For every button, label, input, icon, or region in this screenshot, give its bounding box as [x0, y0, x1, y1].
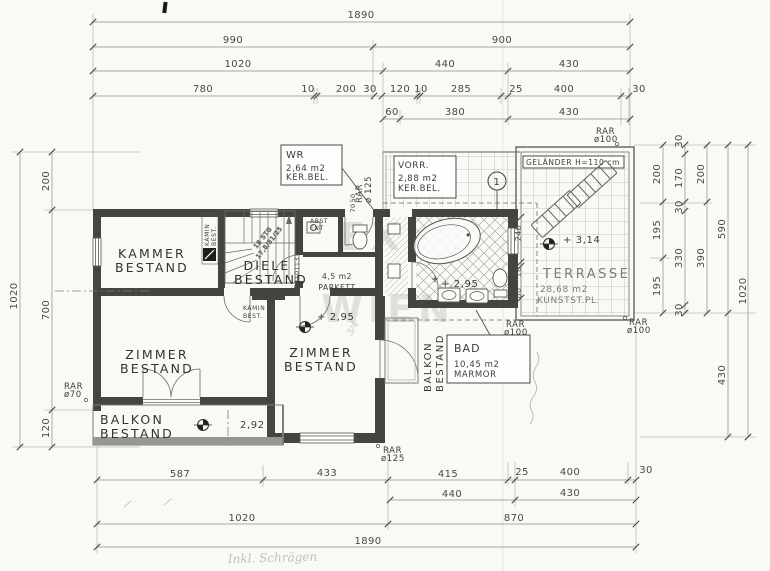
railing-note: GELÄNDER H=110 cm — [526, 158, 620, 167]
room-name: VORR. — [398, 161, 429, 171]
room-name: DIELE — [243, 258, 290, 273]
dim-label: 590 — [717, 219, 728, 239]
rar-text: ø100 — [504, 328, 528, 338]
balcony-southwest: BALKON BESTAND 2,92 — [93, 405, 283, 445]
dim-label: 380 — [445, 107, 465, 118]
room-floor: KUNSTST.PL. — [537, 296, 600, 306]
room-name: BAD — [454, 342, 481, 355]
bath-toilet — [493, 269, 507, 297]
dim-label: 113 — [293, 257, 301, 271]
bath-sink — [438, 288, 460, 302]
dim-label: 440 — [435, 59, 455, 70]
room-area: 2,88 m2 — [398, 174, 438, 184]
room-name: ZIMMER — [289, 345, 353, 360]
level-value: + 2,95 — [317, 312, 354, 323]
floor-plan-scan: EX WIEN 1890 990 900 1020 440 43 — [0, 0, 770, 571]
bath-sink — [466, 289, 488, 303]
level-value: 2,92 — [240, 420, 265, 431]
dim-label: 200 — [336, 84, 356, 95]
rar-text: ø 125 — [364, 176, 374, 203]
dim-label: 400 — [554, 84, 574, 95]
dim-label: 1020 — [224, 59, 251, 70]
room-abbrev: ABST — [310, 218, 328, 225]
room-status: BESTAND — [120, 361, 194, 376]
stairs-note: 18 STG 17,8/31/25 — [249, 220, 285, 260]
dim-label: 430 — [559, 59, 579, 70]
rar-text: ø100 — [594, 135, 618, 145]
level-value: + 3,14 — [563, 235, 600, 246]
room-status: BESTAND — [115, 260, 189, 275]
dim-label: 195 — [652, 220, 663, 240]
dim-label: 30 — [363, 84, 377, 95]
dim-label: 433 — [317, 468, 337, 479]
dim-label: 60 — [385, 107, 399, 118]
dim-label: 780 — [193, 84, 213, 95]
room-name: TERRASSE — [542, 267, 630, 282]
dim-label: 430 — [717, 365, 728, 385]
door-balcony-east — [380, 340, 418, 378]
dim-label: 200 — [652, 164, 663, 184]
dim-label: 1020 — [738, 277, 749, 304]
dim-label: 10 — [414, 84, 428, 95]
terrace: GELÄNDER H=110 cm + 3,14 TERRASSE 28,68 … — [516, 147, 634, 320]
dim-label: 1890 — [347, 10, 374, 21]
kamin-text: KAMIN — [243, 305, 265, 312]
room-status: BESTAND — [100, 426, 174, 441]
room-name: WR — [286, 150, 304, 161]
room-status: BESTAND — [435, 334, 446, 392]
scan-artifact — [162, 2, 167, 13]
dim-label: 70 — [349, 203, 357, 212]
rar-bad: RARø100 — [504, 320, 528, 338]
dim-label: 1890 — [354, 536, 381, 547]
rar-text: ø70 — [64, 390, 82, 400]
level-value: + 2,95 — [441, 279, 478, 290]
room-status: BESTAND — [284, 359, 358, 374]
dim-label: 200 — [41, 171, 52, 191]
room-area: 28,68 m2 — [540, 285, 588, 295]
kamin-text: BEST. — [211, 226, 218, 246]
dim-label: 870 — [504, 513, 524, 524]
window-top — [250, 209, 278, 217]
dimension-chains-right: 200 195 195 30 170 30 330 30 200 390 590… — [634, 134, 756, 440]
room-floor: MARMOR — [454, 370, 497, 380]
vorraum: VORR. 2,88 m2 KER.BEL. 1 — [383, 152, 537, 209]
rar-text: ø100 — [627, 326, 651, 336]
dim-label: 390 — [696, 248, 707, 268]
dim-label: 30 — [674, 303, 685, 317]
position-marker-number: 1 — [494, 177, 501, 188]
dim-label: 120 — [41, 418, 52, 438]
room-area: 4,5 m2 — [322, 272, 352, 281]
rar-left: RARø70 — [64, 382, 88, 402]
level-marker — [296, 322, 314, 333]
rar-wr-vertical: RARø 125 — [355, 176, 374, 203]
room-area: 10,45 m2 — [454, 360, 500, 370]
dim-label: 30 — [639, 465, 653, 476]
room-floor: PARKETT — [318, 283, 355, 292]
window-zimmer2 — [300, 433, 354, 443]
room-abbrev: ENT — [310, 225, 324, 232]
dim-label: 200 — [696, 164, 707, 184]
dim-label: 30 — [674, 200, 685, 214]
dim-label: 430 — [559, 107, 579, 118]
dim-label: 440 — [442, 489, 462, 500]
room-name: KAMMER — [118, 246, 186, 261]
dim-label: 900 — [492, 35, 512, 46]
rar-top-right: RARø100 — [594, 127, 619, 146]
window-left — [93, 238, 101, 266]
dim-label: 25 — [509, 84, 523, 95]
kamin-label-horizontal: KAMIN BEST. — [243, 305, 265, 320]
pencil-scribble — [530, 352, 539, 424]
dim-label: 587 — [170, 469, 190, 480]
dim-label: 330 — [674, 248, 685, 268]
dim-label: 50 — [349, 193, 357, 202]
dim-label: 430 — [560, 488, 580, 499]
dim-label: 285 — [451, 84, 471, 95]
bathroom: + 2,95 — [408, 211, 508, 303]
dim-label: 195 — [652, 276, 663, 296]
dim-label: 30 — [674, 134, 685, 148]
dim-label: 1020 — [9, 282, 20, 309]
dim-label: 240 — [514, 225, 523, 241]
kamin-label-vertical: KAMIN BEST. — [202, 214, 218, 264]
room-name: BALKON — [423, 342, 434, 392]
dim-label: 25 — [515, 467, 529, 478]
kamin-text: BEST. — [243, 313, 263, 320]
dim-label: 72 — [293, 279, 301, 288]
rar-text: ø125 — [381, 454, 405, 464]
pencil-tick-marks — [124, 499, 171, 507]
handwritten-note: Inkl. Schrägen — [227, 550, 318, 566]
wc-toilet — [353, 225, 367, 249]
dim-label: 1020 — [228, 513, 255, 524]
dim-label: 990 — [223, 35, 243, 46]
dim-label: 10 — [301, 84, 315, 95]
kamin-text: KAMIN — [204, 224, 211, 246]
room-floor: KER.BEL. — [398, 184, 441, 194]
dim-label: 400 — [560, 467, 580, 478]
dim-label: 170 — [674, 168, 685, 188]
room-name: BALKON — [100, 412, 164, 427]
dim-label: 10 — [293, 270, 301, 279]
dim-label: 120 — [390, 84, 410, 95]
dim-label: 700 — [41, 300, 52, 320]
rar-bottom: RARø125 — [376, 444, 404, 464]
level-marker — [194, 420, 212, 431]
dim-label: 415 — [438, 469, 458, 480]
room-floor: KER.BEL. — [286, 173, 329, 183]
room-name: ZIMMER — [125, 347, 189, 362]
dim-label: 30 — [632, 84, 646, 95]
